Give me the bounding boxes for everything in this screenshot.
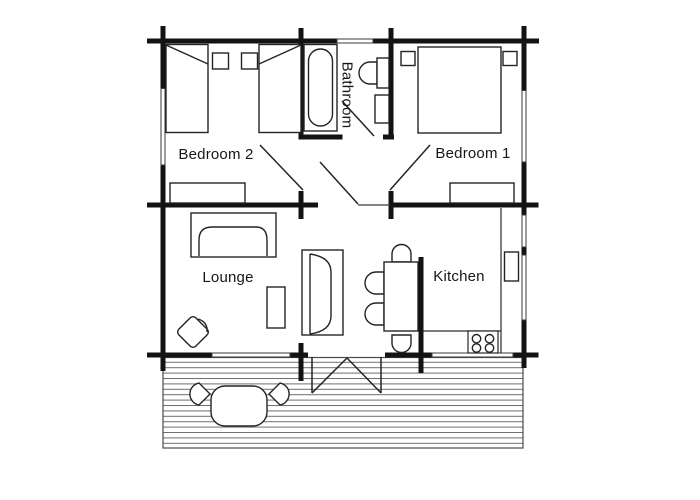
door-swing — [390, 145, 430, 190]
nightstand-icon — [213, 53, 229, 69]
double-bed-icon — [418, 47, 501, 133]
chair-icon — [365, 272, 384, 294]
floor-plan: Bedroom 2 Bathroom Bedroom 1 Lounge Kitc… — [0, 0, 700, 500]
lounge-furniture — [176, 213, 343, 349]
chair-icon — [392, 335, 411, 353]
window-segment — [522, 215, 526, 247]
nightstand-icon — [242, 53, 258, 69]
window-segment — [161, 89, 165, 166]
room-label-kitchen: Kitchen — [433, 268, 484, 285]
window-segment — [337, 39, 373, 43]
door-swing — [320, 162, 358, 204]
wall-segment — [385, 353, 432, 358]
wall-log-end — [522, 26, 527, 40]
window-segment — [522, 91, 526, 163]
wall-log-end — [161, 355, 166, 371]
deck — [163, 358, 523, 449]
sofa-icon — [302, 250, 343, 335]
room-label-lounge: Lounge — [202, 269, 253, 286]
bedroom-2-furniture — [166, 45, 301, 204]
wall-segment — [161, 165, 166, 371]
wall-segment — [373, 39, 527, 44]
wall-segment — [160, 39, 337, 44]
door-swing — [260, 145, 303, 190]
wall-segment — [383, 135, 394, 140]
wall-segment — [522, 39, 527, 91]
basin-icon — [375, 95, 389, 123]
coffee-table-icon — [267, 287, 285, 328]
window-segment — [432, 353, 513, 357]
single-bed-icon — [166, 45, 208, 133]
room-label-bathroom: Bathroom — [339, 62, 356, 129]
wall-segment — [522, 247, 527, 255]
stove-icon — [468, 331, 498, 353]
wall-log-end — [522, 355, 527, 368]
floor-plan-canvas: Bedroom 2 Bathroom Bedroom 1 Lounge Kitc… — [0, 0, 700, 500]
wall-log-end — [389, 28, 394, 40]
armchair-icon — [176, 315, 210, 349]
room-label-bedroom-2: Bedroom 2 — [178, 146, 253, 163]
wall-segment — [161, 39, 166, 89]
armchair-seat — [176, 315, 210, 349]
wall-log-end — [147, 39, 161, 44]
wall-log-end — [526, 39, 539, 44]
wall-log-end — [147, 203, 161, 208]
toilet-icon — [359, 62, 377, 84]
chair-icon — [392, 245, 411, 262]
wall-log-end — [161, 26, 166, 40]
dining-set — [365, 245, 418, 353]
wall-log-end — [527, 203, 539, 208]
chair-icon — [365, 303, 384, 325]
dresser-icon — [450, 183, 514, 203]
window-segment — [522, 255, 526, 320]
bedroom-1-furniture — [401, 47, 517, 203]
room-label-bedroom-1: Bedroom 1 — [435, 145, 510, 162]
toilet-cistern-icon — [377, 58, 389, 88]
wall-log-end — [299, 343, 304, 381]
wall-log-end — [527, 353, 539, 358]
deck-table-icon — [211, 386, 267, 426]
bathtub-basin-icon — [309, 49, 333, 126]
dresser-icon — [170, 183, 245, 203]
wall-segment — [299, 135, 343, 140]
wall-log-end — [299, 191, 304, 219]
pillow-icon — [503, 52, 517, 66]
window-segment — [212, 353, 290, 357]
dining-table-icon — [384, 262, 418, 331]
sofa-icon — [191, 213, 276, 257]
single-bed-icon — [259, 45, 301, 133]
wall-log-end — [299, 28, 304, 40]
pillow-icon — [401, 52, 415, 66]
kitchen-sink-icon — [505, 252, 519, 281]
